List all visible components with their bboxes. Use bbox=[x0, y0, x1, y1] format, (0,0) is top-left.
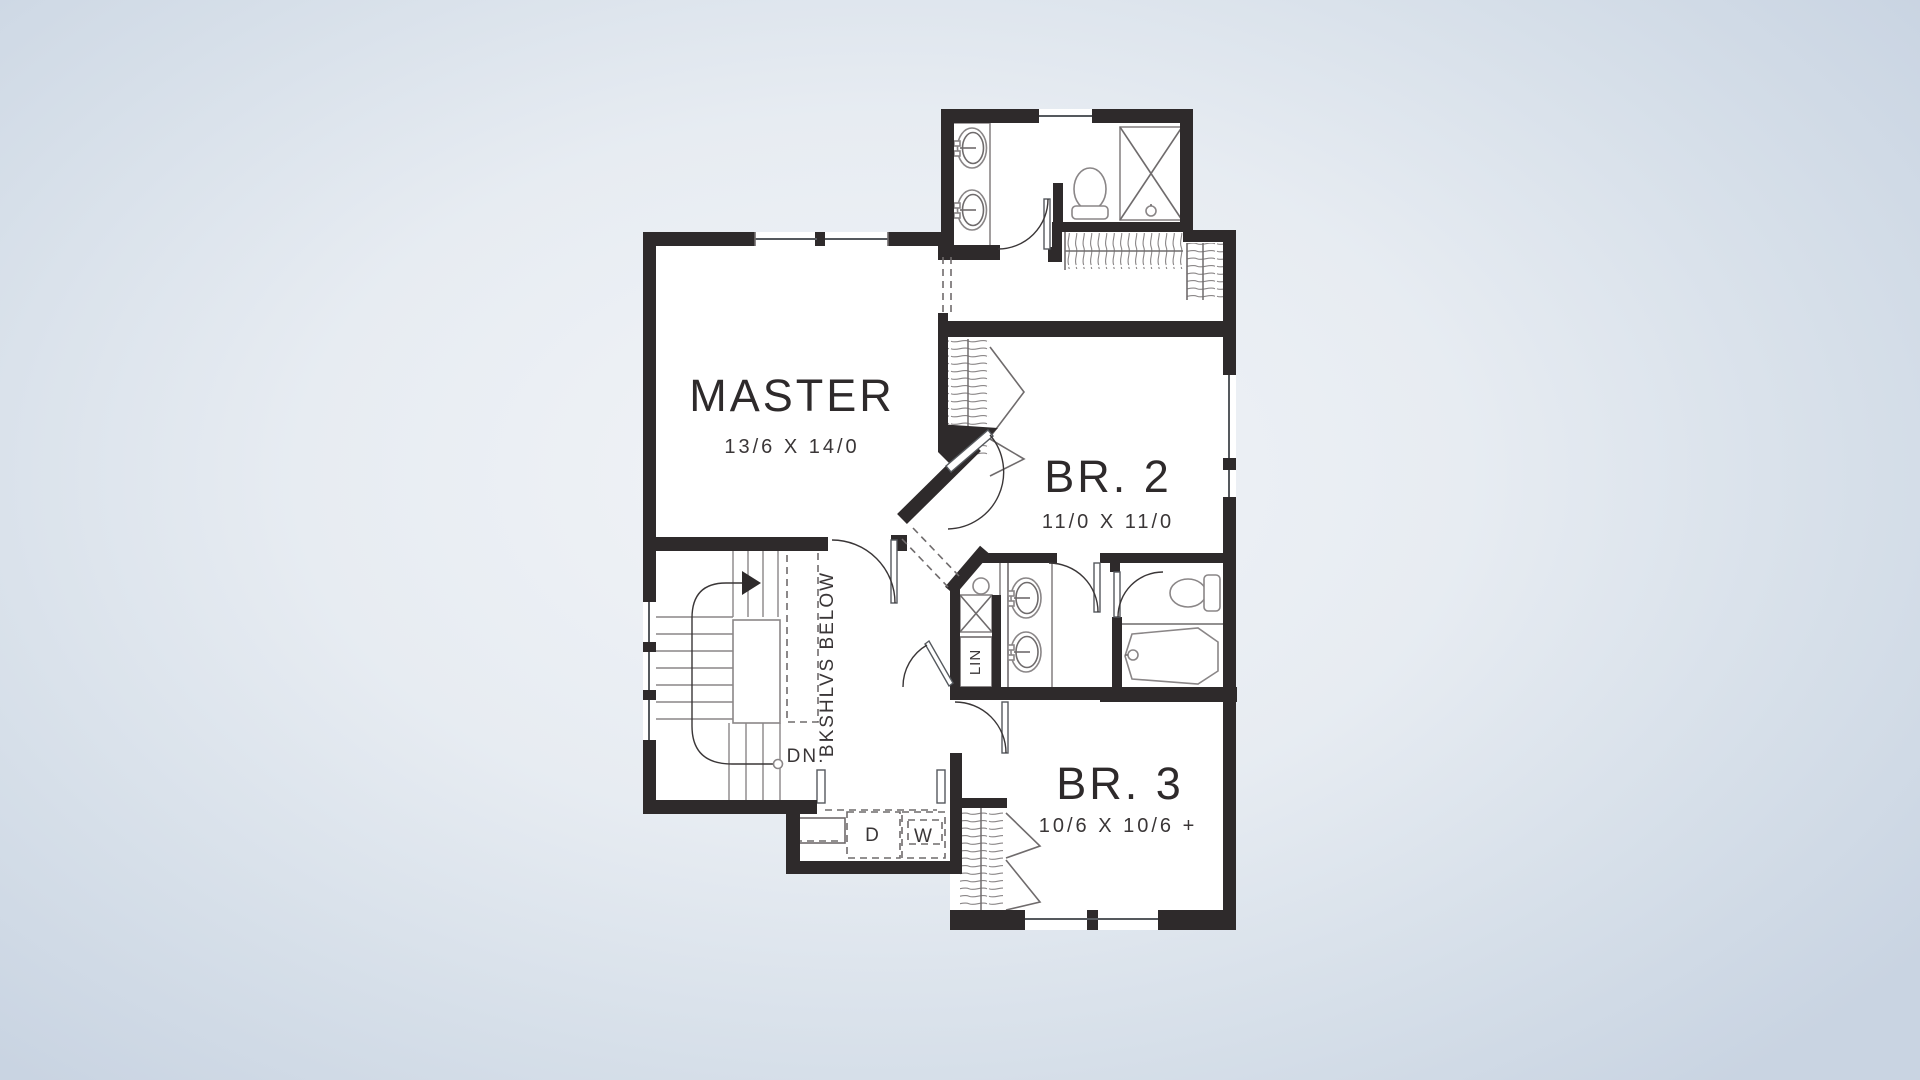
opening-jamb bbox=[817, 770, 825, 803]
note-down: DN. bbox=[787, 746, 826, 767]
toilet-icon bbox=[1072, 168, 1108, 219]
chase-icon bbox=[960, 595, 992, 632]
stair-well bbox=[733, 620, 780, 723]
room-dims-br3: 10/6 X 10/6 + bbox=[1039, 815, 1198, 837]
note-washer: W bbox=[914, 826, 934, 847]
room-dims-master: 13/6 X 14/0 bbox=[724, 436, 859, 458]
note-dryer: D bbox=[865, 825, 881, 846]
floor-plan-drawing: MASTER 13/6 X 14/0 BR. 2 11/0 X 11/0 BR.… bbox=[0, 0, 1920, 1080]
ceiling-fixture-icon bbox=[973, 578, 989, 594]
note-linen: LIN bbox=[967, 649, 984, 675]
floor-plan-page: MASTER 13/6 X 14/0 BR. 2 11/0 X 11/0 BR.… bbox=[0, 0, 1920, 1080]
shower-icon bbox=[1120, 127, 1182, 220]
note-bookshelves: BKSHLVS BELOW bbox=[817, 571, 838, 757]
room-label-br2: BR. 2 bbox=[1044, 451, 1172, 502]
room-label-br3: BR. 3 bbox=[1056, 758, 1184, 809]
opening-jamb bbox=[937, 770, 945, 803]
room-label-master: MASTER bbox=[689, 370, 895, 421]
room-dims-br2: 11/0 X 11/0 bbox=[1042, 511, 1174, 533]
stair-direction-start bbox=[774, 760, 783, 769]
